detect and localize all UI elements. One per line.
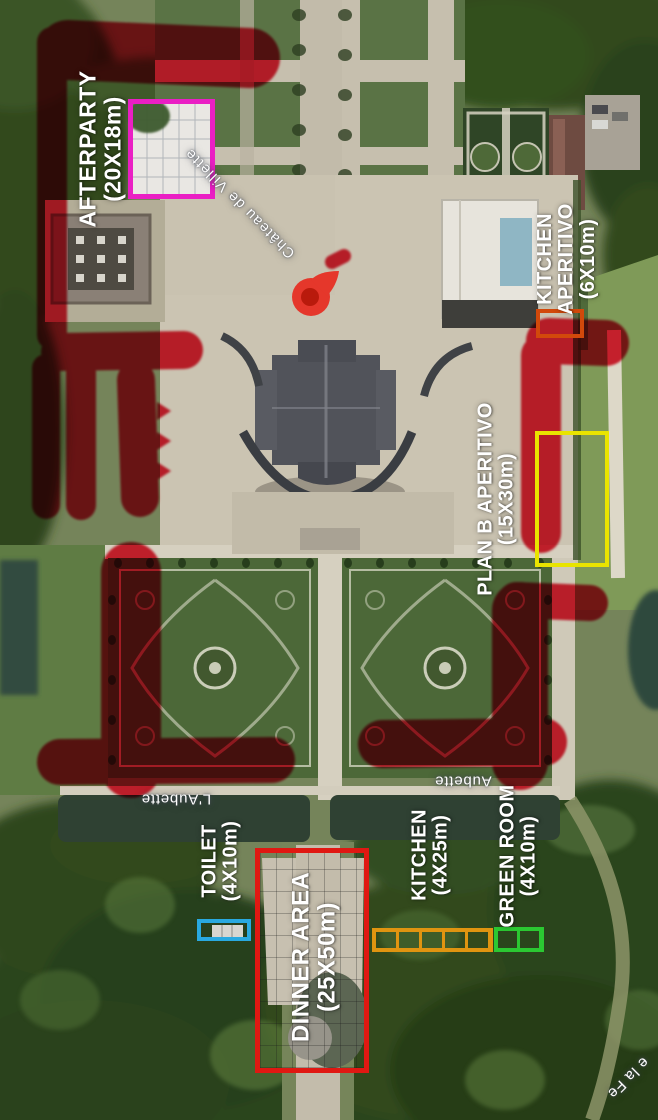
zone-box-toilet [197, 919, 251, 941]
zone-label-size: (25X50m) [314, 872, 340, 1042]
zone-label-plan-b-aperitivo: PLAN B APERITIVO (15X30m) [476, 402, 519, 595]
zone-label-kitchen: KITCHEN (4X25m) [410, 809, 453, 901]
zone-label-size: (4X25m) [431, 809, 452, 901]
zone-label-line: AFTERPARTY [75, 71, 100, 228]
street-label-aubette: Aubette [434, 773, 491, 790]
zone-label-kitchen-aperitivo: KITCHEN APERITIVO (6X10m) [535, 203, 599, 314]
zone-label-size: (4X10m) [221, 821, 242, 902]
pool-building [442, 200, 538, 328]
zone-label-line: GREEN ROOM [498, 785, 519, 928]
zone-label-size: (4X10m) [519, 785, 540, 928]
zone-box-kitchen [372, 928, 493, 952]
zone-label-size: (6X10m) [578, 203, 599, 314]
zone-box-plan-b-aperitivo [535, 431, 609, 567]
zone-label-line: TOILET [200, 821, 221, 902]
zone-label-line: KITCHEN [410, 809, 431, 901]
zone-label-line: PLAN B APERITIVO [476, 402, 497, 595]
street-label-laubette: L'Aubette [141, 791, 211, 808]
parking-area [585, 95, 640, 170]
zone-label-line: APERITIVO [556, 203, 577, 314]
zone-label-size: (20X18m) [100, 71, 125, 228]
zone-label-line: DINNER AREA [288, 872, 314, 1042]
zone-label-size: (15X30m) [497, 402, 518, 595]
zone-label-afterparty: AFTERPARTY (20X18m) [75, 71, 124, 228]
zone-box-green-room [494, 927, 544, 952]
zone-box-afterparty [128, 99, 215, 199]
zone-label-line: KITCHEN [535, 203, 556, 314]
zone-label-dinner-area: DINNER AREA (25X50m) [288, 872, 339, 1042]
zone-label-toilet: TOILET (4X10m) [200, 821, 243, 902]
zone-label-green-room: GREEN ROOM (4X10m) [498, 785, 541, 928]
annotated-satellite-map: AFTERPARTY (20X18m) KITCHEN APERITIVO (6… [0, 0, 658, 1120]
